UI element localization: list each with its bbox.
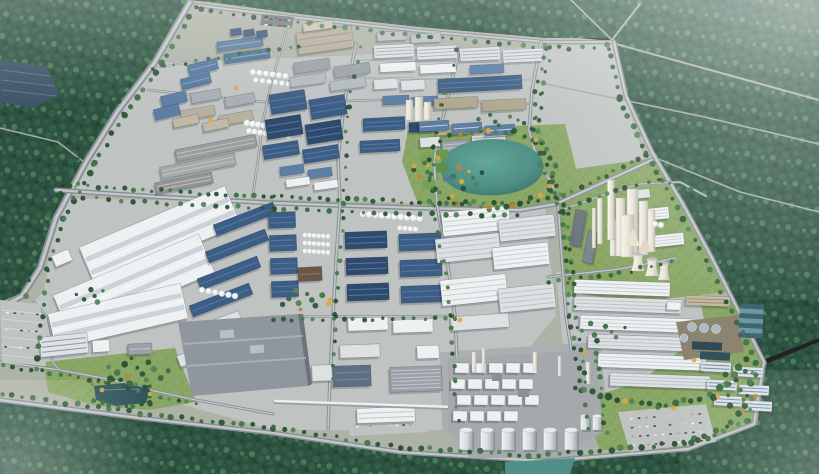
haze-bottomright (680, 370, 819, 474)
chem-silos-small (593, 414, 602, 417)
chem-units (502, 411, 518, 423)
chem-dark-unit (518, 390, 529, 397)
haze-topright (480, 0, 819, 300)
garden-court (443, 176, 451, 182)
chem-column (533, 352, 537, 370)
z6-small-tanks (326, 250, 331, 255)
chem-column (482, 348, 485, 372)
z5-silos (232, 293, 238, 299)
chem-dark-unit (492, 374, 502, 381)
wwtp-basin (700, 351, 730, 361)
z6-small-tanks (326, 234, 331, 239)
mega-vent (250, 345, 265, 354)
industrial-park-aerial-render (0, 0, 819, 474)
tc-blue-g (358, 139, 401, 155)
wwtp-basin (692, 341, 722, 351)
garden-plot (436, 163, 449, 173)
chem-column (558, 356, 561, 376)
haze-bottomleft (0, 380, 220, 474)
z6-blue-grid (399, 285, 444, 306)
z6-mid-hall2 (415, 345, 440, 361)
z6-tall-tanks (413, 227, 418, 232)
z6-striped-hall (388, 366, 443, 395)
bl-small-bldg (90, 339, 110, 354)
wwtp-clarifiers (680, 334, 688, 342)
chem-silos (565, 428, 578, 433)
mega-vent (220, 330, 235, 339)
z9-white-small (665, 302, 681, 313)
z6-office (355, 406, 416, 425)
wwtp-clarifiers (712, 325, 721, 334)
z6-admin-brown (296, 266, 323, 284)
tc-blue-f (361, 116, 406, 133)
chem-column (472, 352, 476, 372)
z6-mid-hall (338, 344, 381, 361)
z6-small-tanks (326, 242, 331, 247)
aerial-scene-svg (0, 0, 819, 474)
chem-units (517, 379, 533, 391)
lake-north-small (418, 136, 441, 150)
z6-white-row (391, 319, 434, 336)
z6-blue-grid (345, 283, 390, 304)
z6-small-hall (310, 365, 333, 384)
z6-dark-hall (331, 365, 372, 390)
bl-substation (126, 343, 153, 358)
